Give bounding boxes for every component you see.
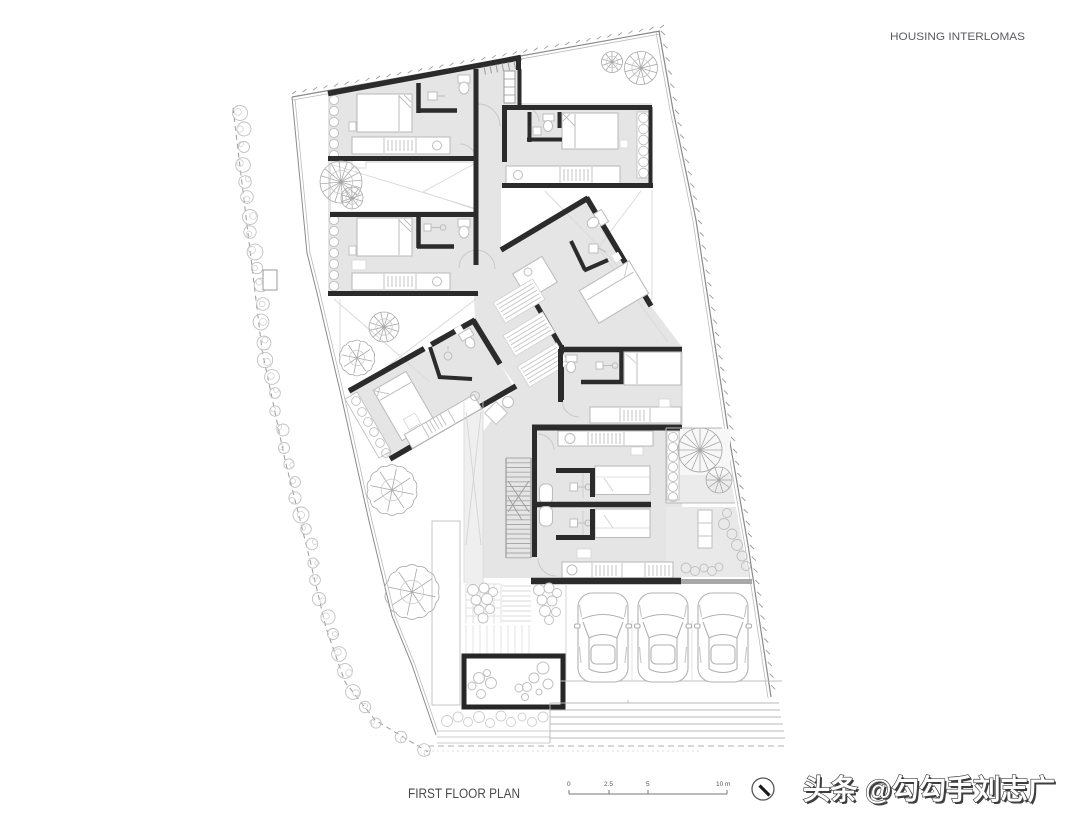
svg-text:10 m: 10 m (716, 781, 730, 788)
svg-text:5: 5 (646, 781, 650, 788)
svg-text:2.5: 2.5 (604, 781, 613, 788)
svg-text:HOUSING INTERLOMAS: HOUSING INTERLOMAS (890, 31, 1025, 43)
svg-text:0: 0 (567, 781, 571, 788)
svg-text:FIRST FLOOR PLAN: FIRST FLOOR PLAN (408, 786, 520, 801)
svg-text:头条 @勾勾手刘志广: 头条 @勾勾手刘志广 (803, 774, 1055, 805)
